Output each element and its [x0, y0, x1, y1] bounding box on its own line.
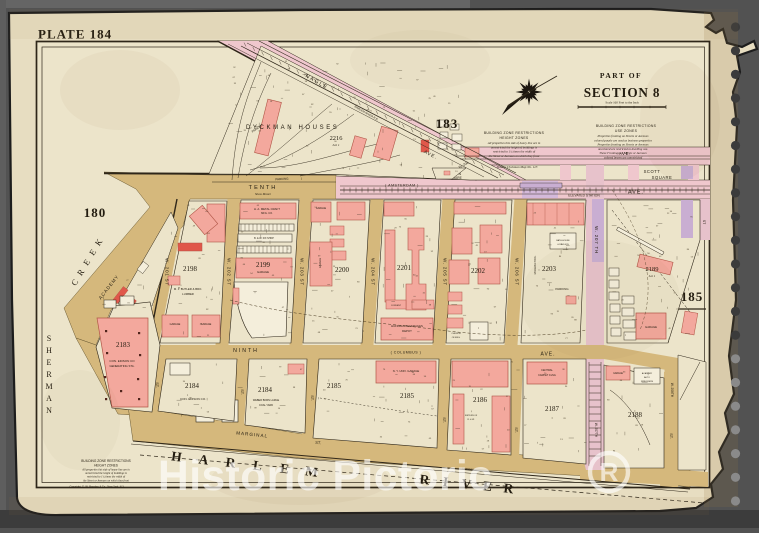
svg-text:CENTRAL: CENTRAL: [541, 369, 553, 372]
svg-text:2202: 2202: [471, 267, 486, 275]
svg-text:AVE.: AVE.: [628, 190, 644, 196]
svg-text:GARAGE: GARAGE: [170, 323, 181, 326]
svg-text:the Street or Avenues on which: the Street or Avenues on which they fron…: [83, 479, 129, 482]
svg-text:W. 201 ST: W. 201 ST: [165, 258, 170, 286]
svg-text:W. 202 ST: W. 202 ST: [227, 258, 232, 286]
svg-text:DEPOT: DEPOT: [402, 329, 412, 333]
svg-text:GARAGE: GARAGE: [319, 257, 322, 268]
svg-text:ST.: ST.: [315, 440, 321, 446]
svg-text:W. 203 ST: W. 203 ST: [300, 258, 305, 286]
svg-text:ST.: ST.: [240, 389, 244, 395]
svg-text:2199: 2199: [256, 261, 271, 269]
svg-text:CONVENT: CONVENT: [391, 305, 402, 307]
svg-text:TENTH: TENTH: [249, 185, 278, 191]
svg-text:ST.: ST.: [514, 427, 518, 433]
svg-text:2188: 2188: [628, 411, 643, 419]
svg-text:GARAGE: GARAGE: [316, 207, 327, 210]
svg-text:2183: 2183: [116, 341, 131, 349]
svg-text:COAL YARD: COAL YARD: [259, 404, 273, 407]
svg-text:AVE.: AVE.: [540, 352, 555, 358]
svg-text:( AMSTERDAM ): ( AMSTERDAM ): [385, 184, 419, 188]
svg-text:Scale 160 Feet to the Inch: Scale 160 Feet to the Inch: [605, 101, 639, 105]
svg-text:Historic Pictoric: Historic Pictoric: [158, 453, 492, 500]
svg-text:the Street or Avenues on which: the Street or Avenues on which they fron…: [489, 154, 540, 158]
svg-text:PARKING: PARKING: [275, 177, 289, 182]
svg-text:MFG. CO.: MFG. CO.: [261, 211, 273, 215]
svg-text:ACADEMY: ACADEMY: [642, 372, 653, 375]
svg-text:OF ENG.: OF ENG.: [452, 337, 461, 339]
svg-text:LUMBER: LUMBER: [182, 292, 194, 296]
svg-text:colored brown are unrestricted: colored brown are unrestricted: [604, 156, 643, 160]
svg-text:Lot 1: Lot 1: [331, 143, 339, 147]
svg-text:CON. EDISON CO: CON. EDISON CO: [109, 359, 135, 363]
svg-text:2185: 2185: [327, 382, 342, 390]
svg-text:CARPET CLNG: CARPET CLNG: [538, 374, 556, 377]
svg-text:B. & W. FIX SHOP: B. & W. FIX SHOP: [254, 237, 274, 240]
svg-text:R: R: [46, 370, 52, 379]
svg-text:SISTERS OF: SISTERS OF: [465, 415, 478, 417]
svg-text:R. & W.: R. & W.: [467, 419, 474, 421]
svg-text:W. 204 ST: W. 204 ST: [371, 258, 376, 286]
svg-text:WRECKERS: WRECKERS: [641, 381, 654, 383]
svg-text:NINTH: NINTH: [233, 348, 259, 354]
svg-text:BUILDING ZONE RESTRICTIONS: BUILDING ZONE RESTRICTIONS: [484, 131, 545, 135]
svg-text:W. 208TH: W. 208TH: [670, 383, 674, 398]
svg-text:S: S: [47, 334, 51, 343]
svg-text:E: E: [47, 358, 52, 367]
svg-text:2198: 2198: [183, 265, 198, 273]
svg-text:GARAGE: GARAGE: [201, 323, 212, 326]
svg-text:ST.: ST.: [310, 395, 314, 401]
svg-text:H. A. METAL CRAFT: H. A. METAL CRAFT: [254, 207, 280, 211]
svg-text:N. Y. UNIV. GARAGE: N. Y. UNIV. GARAGE: [393, 369, 420, 373]
svg-text:AUTO: AUTO: [644, 376, 650, 379]
svg-text:GENERATING STA.: GENERATING STA.: [109, 364, 134, 368]
svg-text:ST.: ST.: [669, 433, 673, 439]
svg-text:restricted to 1¾ times the wi: restricted to 1¾ times the width of: [87, 476, 126, 479]
svg-text:H: H: [46, 346, 52, 355]
svg-text:( COLUMBUS ): ( COLUMBUS ): [391, 351, 422, 355]
svg-text:GARAGE: GARAGE: [257, 270, 269, 274]
svg-text:BATH HOUSE: BATH HOUSE: [556, 239, 570, 242]
svg-text:GARAGE: GARAGE: [613, 372, 623, 375]
svg-text:2201: 2201: [397, 264, 412, 272]
svg-text:2187: 2187: [545, 405, 560, 413]
svg-text:R: R: [600, 457, 619, 487]
svg-text:2200: 2200: [335, 266, 350, 274]
svg-text:ST.: ST.: [442, 417, 446, 423]
svg-text:183: 183: [436, 116, 459, 131]
svg-text:2184: 2184: [185, 382, 200, 390]
svg-text:WEBER BORN LARGE: WEBER BORN LARGE: [253, 399, 280, 402]
svg-text:2186: 2186: [473, 396, 488, 404]
svg-text:Copyright, G. W. Bromley & Co.: Copyright, G. W. Bromley & Co., New York…: [69, 485, 124, 489]
svg-text:W. 207TH: W. 207TH: [594, 423, 598, 438]
svg-text:USE ZONES: USE ZONES: [615, 129, 638, 133]
svg-text:HEIGHT ZONES: HEIGHT ZONES: [500, 136, 529, 140]
svg-text:W. 205 ST: W. 205 ST: [443, 258, 448, 286]
svg-text:unrestricted the height of bui: unrestricted the height of buildings is: [85, 472, 127, 475]
svg-text:Shaw Moore: Shaw Moore: [255, 192, 272, 196]
svg-text:W. 206 ST: W. 206 ST: [515, 258, 520, 286]
svg-text:CHURCH: CHURCH: [451, 333, 461, 335]
svg-text:All properties this side of he: All properties this side of heavy line a…: [81, 469, 130, 472]
svg-text:PART OF: PART OF: [600, 71, 642, 80]
svg-text:2184: 2184: [258, 386, 273, 394]
svg-text:ST: ST: [702, 220, 706, 224]
svg-text:ELEVATED STATION: ELEVATED STATION: [568, 194, 600, 198]
svg-text:2185: 2185: [400, 392, 415, 400]
svg-text:ST.: ST.: [155, 382, 159, 388]
svg-text:CON. EDISON CO.: CON. EDISON CO.: [180, 397, 206, 401]
svg-text:180: 180: [84, 205, 107, 220]
svg-text:Similar Dyckman Map No. 113: Similar Dyckman Map No. 113: [497, 165, 538, 169]
